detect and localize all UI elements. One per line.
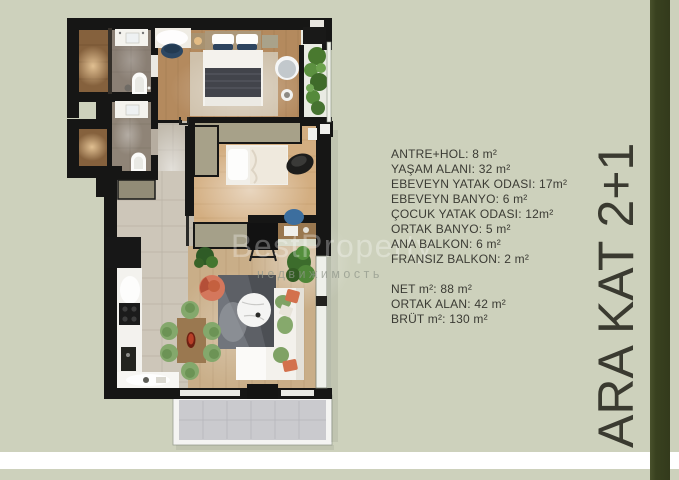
svg-text:недвижимость: недвижимость (257, 267, 383, 281)
